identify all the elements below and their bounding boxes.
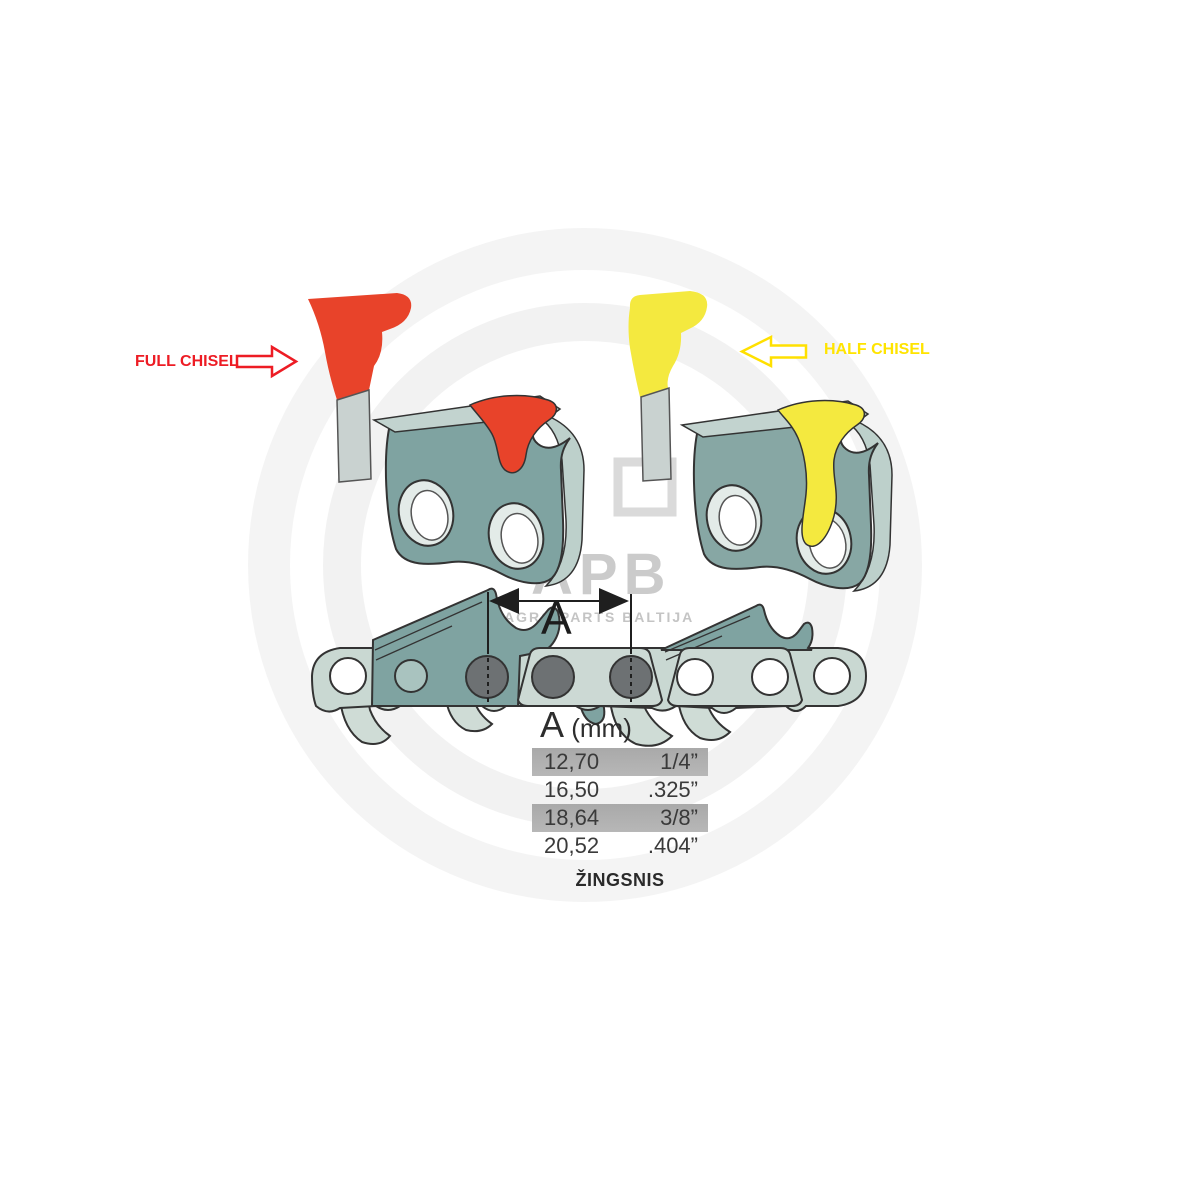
pitch-mm: 12,70 (544, 749, 599, 775)
pitch-inch: .325” (648, 777, 698, 803)
full-chisel-label: FULL CHISEL (135, 354, 239, 370)
table-row: 12,70 1/4” (532, 748, 708, 776)
pitch-inch: 1/4” (660, 749, 698, 775)
pitch-table: A (mm) 12,70 1/4” 16,50 .325” 18,64 3/8”… (532, 704, 708, 891)
table-row: 20,52 .404” (532, 832, 708, 860)
full-chisel-arrow-icon (237, 347, 296, 376)
pitch-table-header-letter: A (540, 704, 564, 745)
pitch-table-header-unit: (mm) (564, 713, 632, 743)
table-row: 16,50 .325” (532, 776, 708, 804)
pitch-inch: .404” (648, 833, 698, 859)
pitch-dimension-label: A (541, 595, 572, 641)
full-chisel-cutter (374, 396, 584, 586)
pitch-mm: 16,50 (544, 777, 599, 803)
half-chisel-cutter (682, 401, 892, 591)
pitch-inch: 3/8” (660, 805, 698, 831)
chainsaw-chain-diagram-page: { "annotations": { "full_chisel_label": … (0, 0, 1188, 1188)
pitch-caption: ŽINGSNIS (532, 870, 708, 891)
pitch-mm: 20,52 (544, 833, 599, 859)
pitch-mm: 18,64 (544, 805, 599, 831)
half-chisel-label: HALF CHISEL (824, 342, 930, 358)
pitch-table-header: A (mm) (532, 704, 708, 748)
table-row: 18,64 3/8” (532, 804, 708, 832)
chain-illustration (0, 0, 1188, 1188)
